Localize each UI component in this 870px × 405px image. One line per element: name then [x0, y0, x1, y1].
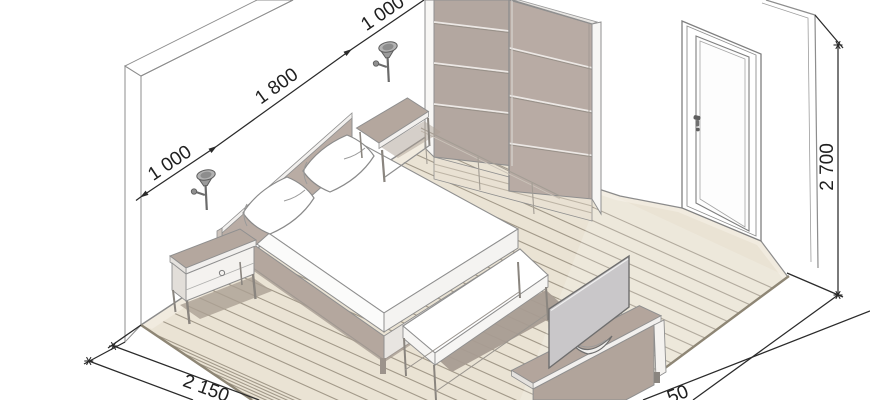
svg-text:2 700: 2 700	[817, 143, 838, 191]
